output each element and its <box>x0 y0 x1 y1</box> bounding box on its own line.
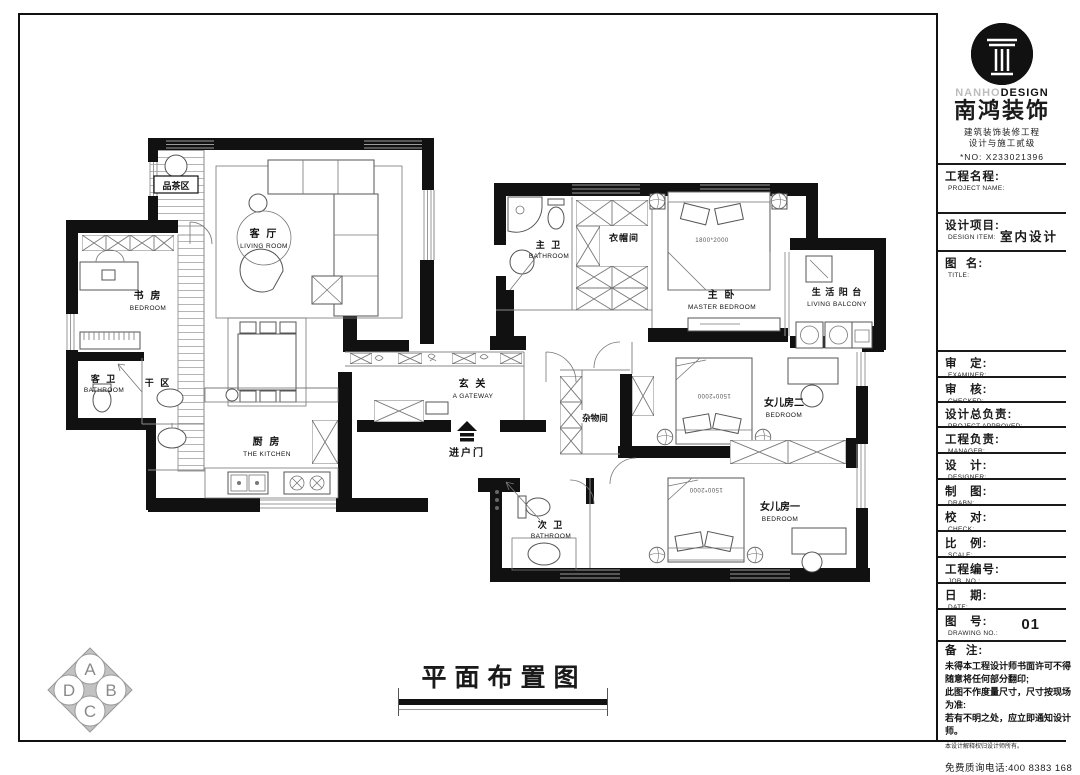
label-living-zh: 客 厅 <box>249 227 279 240</box>
design-item-value: 室内设计 <box>1000 226 1058 245</box>
label-storage-zh: 杂物间 <box>582 413 608 423</box>
title-tick-right <box>607 688 608 716</box>
label-daughter1-en: BEDROOM <box>762 516 798 523</box>
field-drawn: 制 图: DRABN: <box>938 478 1066 504</box>
field-scale: 比 例: SCALE: <box>938 530 1066 556</box>
notes-hotline: 免费质询电话:400 8383 168 <box>945 762 1066 775</box>
notes-label: 备 注: <box>945 645 1066 658</box>
field-designer: 设 计: DESIGNER: <box>938 452 1066 478</box>
title-block: NANHODESIGN 南鸿装饰 建筑装饰装修工程 设计与施工贰级 *NO: X… <box>936 13 1066 740</box>
field-notes: 备 注: 未得本工程设计师书面许可不得 随意将任何部分翻印; 此图不作度量尺寸，… <box>938 640 1066 740</box>
label-masterbath-zh: 主 卫 <box>536 239 563 250</box>
field-check: 校 对: CHECK: <box>938 504 1066 530</box>
notes-fine-print: 本设计解释权归设计师所有。 <box>945 741 1066 754</box>
label-study-en: BEDROOM <box>130 305 166 312</box>
brand-subtitle-2: 设计与施工贰级 <box>938 138 1066 149</box>
label-study-zh: 书 房 <box>134 289 163 302</box>
field-manager: 工程负责: MANAGER: <box>938 426 1066 452</box>
label-daughter2-zh: 女儿房二 <box>764 396 804 409</box>
field-project-approved: 设计总负责: PROJECT APPROVED: <box>938 401 1066 426</box>
label-entry-zh: 进户门 <box>449 446 485 459</box>
bed-size-d1: 1500*2000 <box>689 486 723 492</box>
field-examiner: 审 定: EXAMINER: <box>938 350 1066 376</box>
label-balcony-zh: 生 活 阳 台 <box>812 286 863 297</box>
field-date: 日 期: DATE: <box>938 582 1066 608</box>
compass-a: A <box>84 660 96 679</box>
floor-plan: 品茶区 客 厅 LIVING ROOM 书 房 BEDROOM 客 卫 BATH… <box>18 13 936 740</box>
entry-door-arrow <box>457 421 477 442</box>
field-job-no: 工程编号: JOB NO.: <box>938 556 1066 582</box>
label-masterbed-en: MASTER BEDROOM <box>688 304 756 311</box>
drawing-title: 平面布置图 <box>398 658 610 694</box>
title-underline-thin <box>398 709 608 710</box>
field-design-item: 设计项目: DESIGN ITEM: 室内设计 <box>938 212 1066 250</box>
label-dryzone-zh: 干 区 <box>145 378 172 388</box>
label-balcony-en: LIVING BALCONY <box>807 301 867 308</box>
bed-size-master: 1800*2000 <box>695 238 729 244</box>
compass: A B C D <box>38 638 142 742</box>
label-guestbath-zh: 客 卫 <box>90 373 118 384</box>
drawing-no-value: 01 <box>1021 616 1040 633</box>
compass-c: C <box>84 702 96 721</box>
compass-d: D <box>63 681 75 700</box>
brand-logo-icon <box>971 23 1033 85</box>
label-gateway-en: A GATEWAY <box>453 393 494 400</box>
compass-b: B <box>105 681 116 700</box>
brand-name-zh: 南鸿装饰 <box>938 99 1066 123</box>
title-underline-bar <box>398 699 608 705</box>
brand-logo: NANHODESIGN 南鸿装饰 建筑装饰装修工程 设计与施工贰级 *NO: X… <box>938 13 1066 163</box>
label-tea-area: 品茶区 <box>162 180 189 191</box>
field-title: 图 名: TITLE: <box>938 250 1066 350</box>
label-living-en: LIVING ROOM <box>240 243 288 250</box>
label-kitchen-zh: 厨 房 <box>253 435 282 448</box>
label-daughter2-en: BEDROOM <box>766 412 802 419</box>
brand-license: *NO: X233021396 <box>938 152 1066 163</box>
brand-subtitle-1: 建筑装饰装修工程 <box>938 127 1066 138</box>
label-daughter1-zh: 女儿房一 <box>760 500 800 513</box>
field-project-name: 工程名程: PROJECT NAME: <box>938 163 1066 212</box>
title-tick-left <box>398 688 399 716</box>
field-drawing-no: 图 号: DRAWING NO.: 01 <box>938 608 1066 640</box>
bed-size-d2: 1500*2000 <box>697 392 731 398</box>
label-secondbath-en: BATHROOM <box>531 533 571 540</box>
label-kitchen-en: THE KITCHEN <box>243 451 291 458</box>
label-secondbath-zh: 次 卫 <box>538 519 565 530</box>
field-checked: 审 核: CHECKED: <box>938 376 1066 401</box>
label-cloakroom-zh: 衣帽间 <box>609 232 639 243</box>
label-masterbath-en: BATHROOM <box>529 253 569 260</box>
gateway-decor <box>350 353 522 422</box>
label-guestbath-en: BATHROOM <box>84 387 124 394</box>
label-gateway-zh: 玄 关 <box>459 377 488 390</box>
label-masterbed-zh: 主 卧 <box>708 288 737 301</box>
